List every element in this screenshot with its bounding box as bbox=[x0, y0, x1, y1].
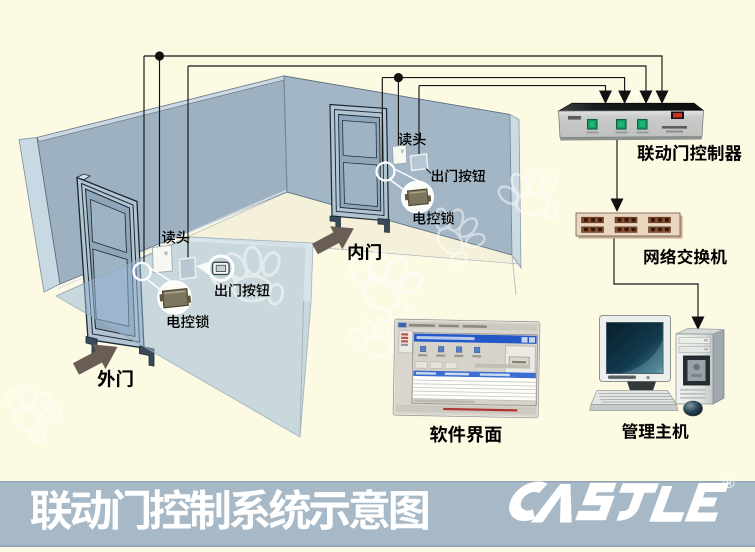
svg-text:®: ® bbox=[723, 475, 735, 492]
